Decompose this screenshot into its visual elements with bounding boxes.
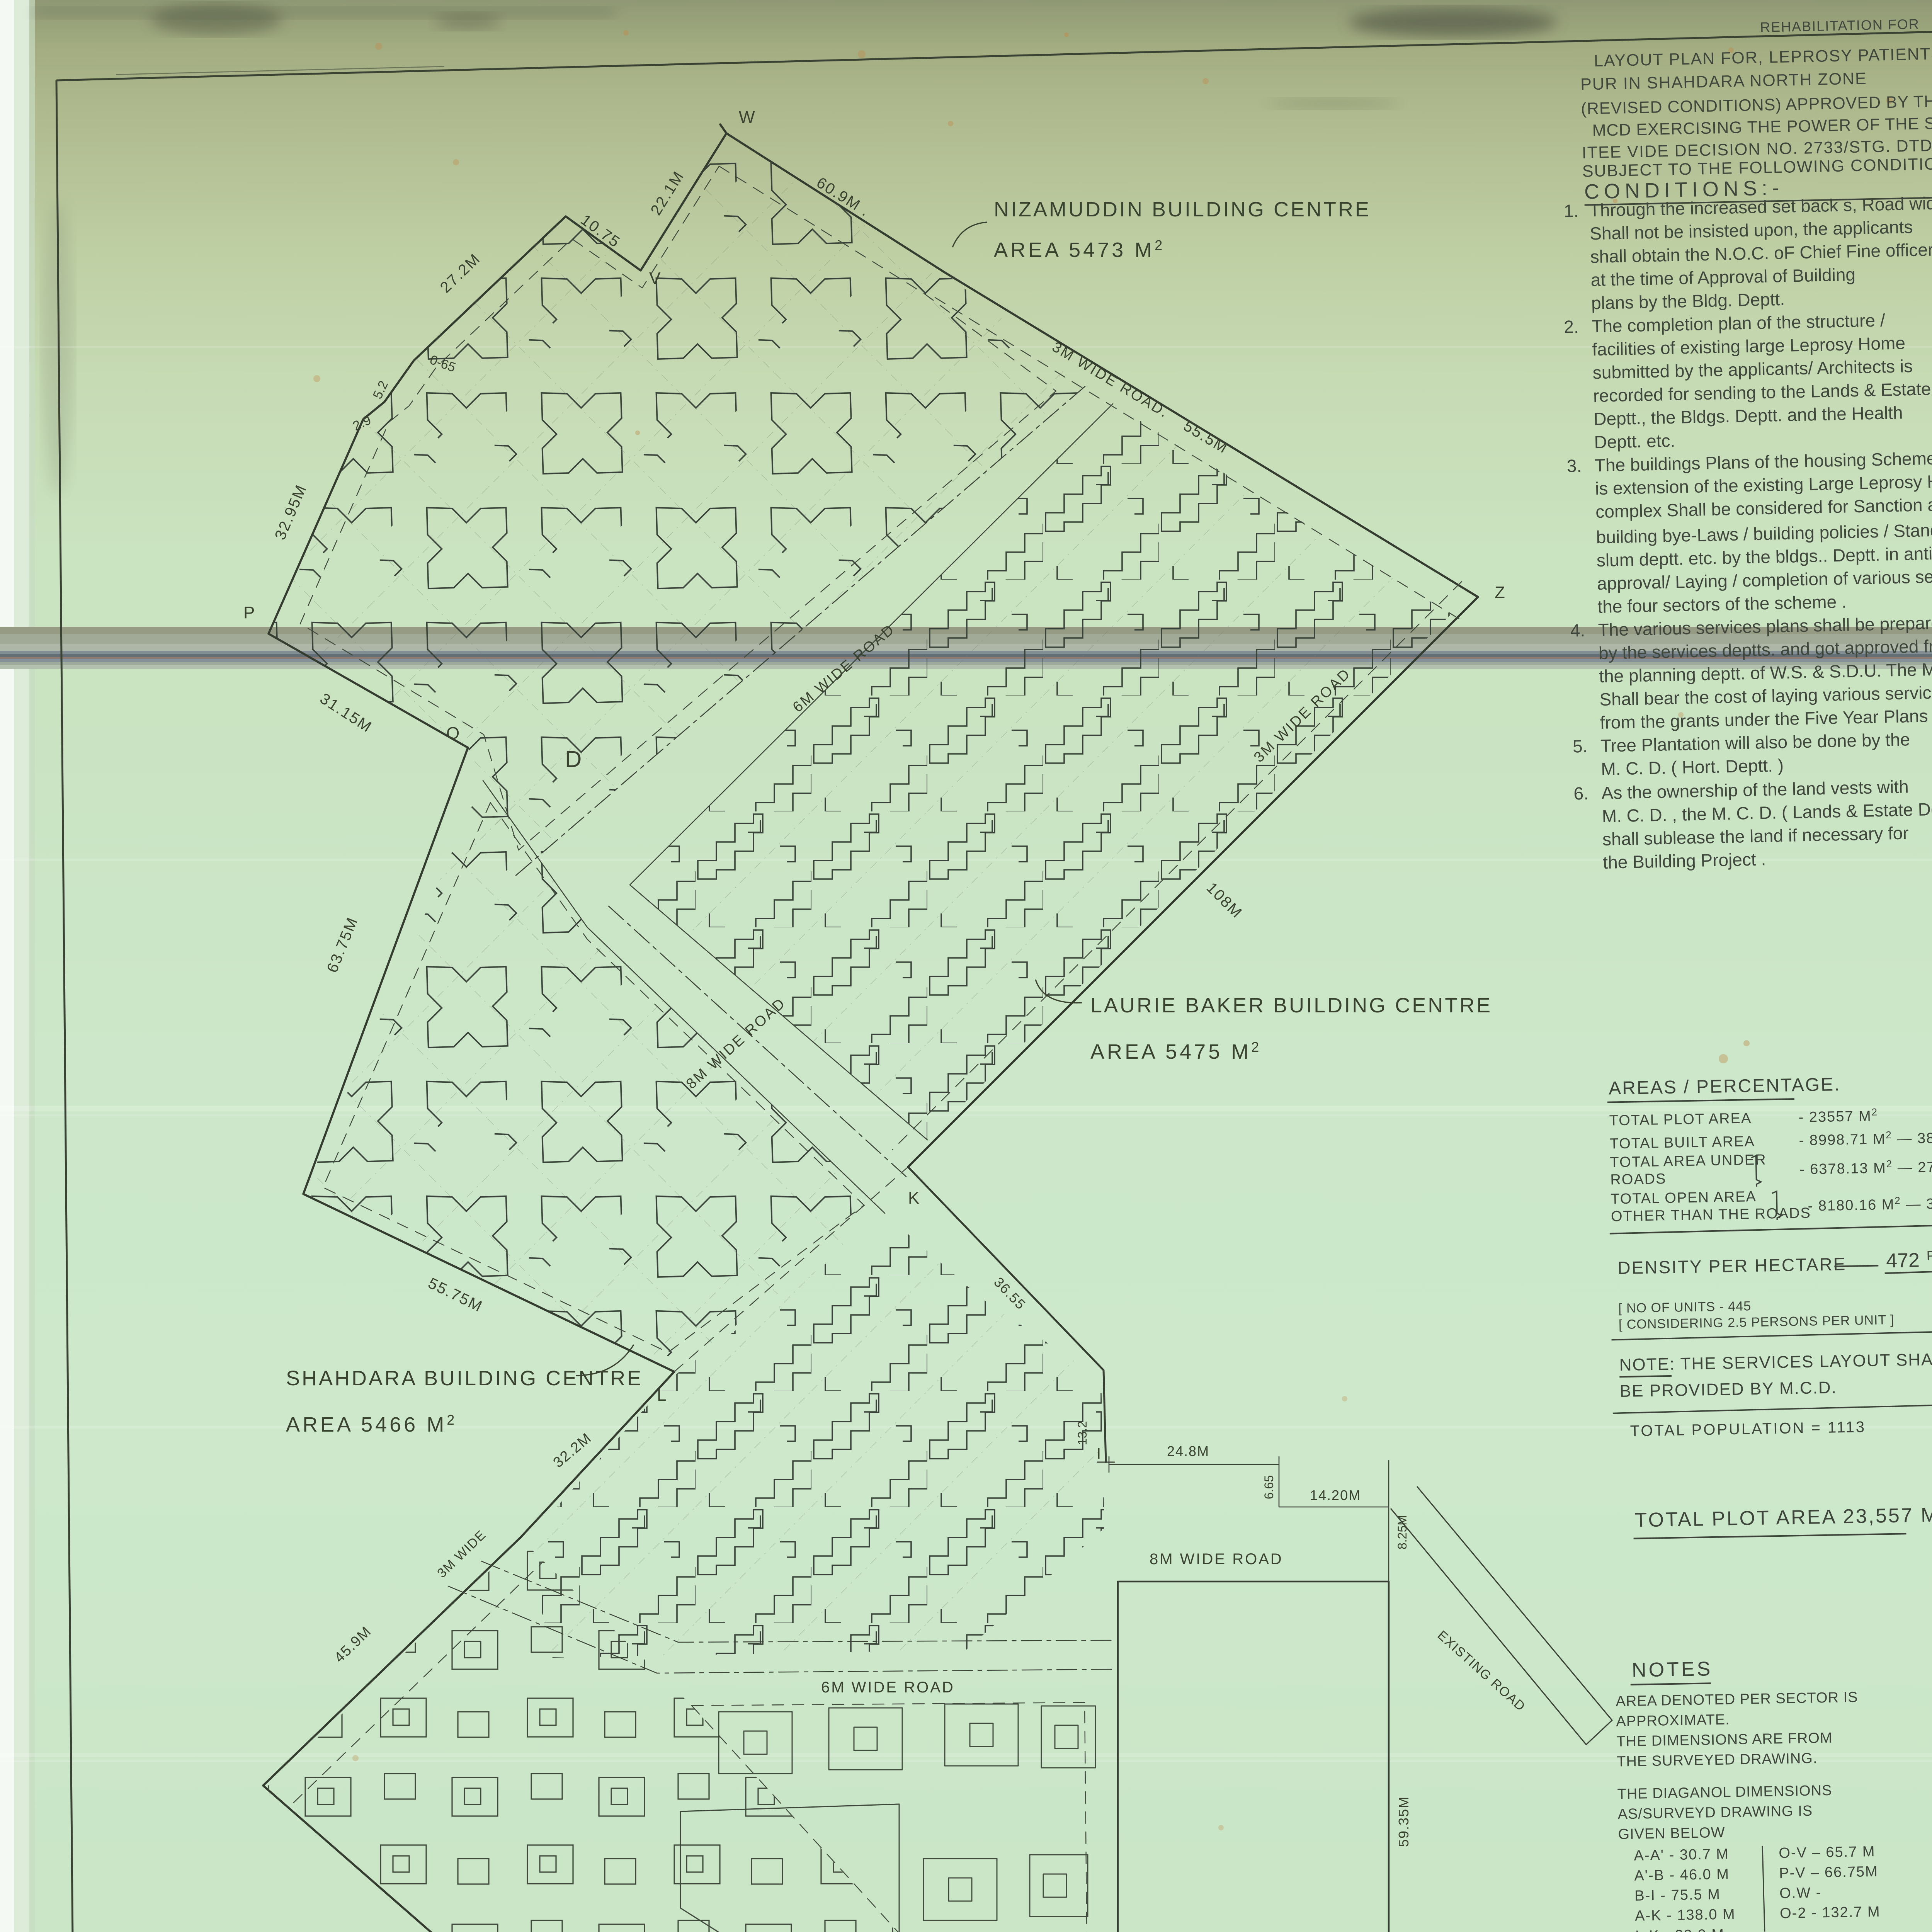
- svg-text:2.: 2.: [1564, 316, 1579, 337]
- svg-text:A-K - 138.0 M: A-K - 138.0 M: [1635, 1906, 1736, 1924]
- svg-text:[ NO OF UNITS - 445: [ NO OF UNITS - 445: [1618, 1299, 1752, 1316]
- svg-text:SHAHDARA BUILDING CENTRE: SHAHDARA BUILDING CENTRE: [286, 1367, 643, 1390]
- svg-text:LAURIE BAKER BUILDING CENTRE: LAURIE BAKER BUILDING CENTRE: [1090, 994, 1492, 1017]
- svg-text:14.20M: 14.20M: [1310, 1487, 1361, 1503]
- svg-text:TOTAL AREA UNDER: TOTAL AREA UNDER: [1610, 1151, 1767, 1170]
- svg-text:AREA 5466 M2: AREA 5466 M2: [286, 1412, 457, 1436]
- svg-text:W: W: [739, 108, 755, 127]
- svg-text:V: V: [649, 269, 661, 288]
- svg-text:NOTES: NOTES: [1632, 1658, 1713, 1682]
- svg-text:5.: 5.: [1572, 736, 1587, 757]
- svg-text:8M WIDE ROAD: 8M WIDE ROAD: [1150, 1551, 1283, 1568]
- svg-text:L: L: [657, 1386, 666, 1405]
- svg-text:AREA 5473 M2: AREA 5473 M2: [994, 237, 1165, 262]
- svg-text:Deptt. etc.: Deptt. etc.: [1594, 430, 1675, 452]
- svg-text:Z: Z: [1495, 583, 1505, 602]
- svg-text:6.65: 6.65: [1262, 1475, 1276, 1499]
- svg-text:AREAS / PERCENTAGE.: AREAS / PERCENTAGE.: [1609, 1074, 1841, 1099]
- svg-text:4.: 4.: [1570, 620, 1585, 641]
- svg-text:24.8M: 24.8M: [1167, 1443, 1209, 1459]
- svg-text:O.W -: O.W -: [1779, 1884, 1822, 1901]
- svg-text:O-2 - 132.7 M: O-2 - 132.7 M: [1780, 1904, 1881, 1922]
- svg-text:P: P: [243, 603, 255, 622]
- svg-text:8.25M: 8.25M: [1395, 1515, 1409, 1549]
- svg-text:6M WIDE ROAD: 6M WIDE ROAD: [821, 1679, 955, 1696]
- svg-text:O-V – 65.7 M: O-V – 65.7 M: [1779, 1844, 1876, 1861]
- svg-text:M. C. D. ( Hort. Deptt. ): M. C. D. ( Hort. Deptt. ): [1601, 755, 1784, 779]
- svg-text:I: I: [1097, 1445, 1101, 1462]
- svg-text:AS/SURVEYD DRAWING IS: AS/SURVEYD DRAWING IS: [1617, 1803, 1813, 1823]
- svg-text:- 23557 M2: - 23557 M2: [1798, 1106, 1878, 1126]
- svg-text:the Building Project .: the Building Project .: [1603, 849, 1766, 872]
- svg-text:B-I - 75.5 M: B-I - 75.5 M: [1634, 1886, 1721, 1904]
- svg-text:DENSITY PER HECTARE: DENSITY PER HECTARE: [1617, 1254, 1847, 1278]
- svg-text:NIZAMUDDIN BUILDING CENTRE: NIZAMUDDIN BUILDING CENTRE: [994, 198, 1371, 221]
- svg-text:472: 472: [1886, 1249, 1920, 1272]
- svg-text:1.: 1.: [1563, 201, 1578, 221]
- svg-text:PERSONS/HECTARE: PERSONS/HECTARE: [1927, 1246, 1932, 1263]
- svg-text:TOTAL OPEN AREA: TOTAL OPEN AREA: [1611, 1189, 1757, 1207]
- svg-text:plans by the Bldg. Deptt.: plans by the Bldg. Deptt.: [1591, 289, 1785, 313]
- svg-text:O: O: [446, 724, 459, 743]
- svg-text:APPROXIMATE.: APPROXIMATE.: [1616, 1711, 1730, 1730]
- svg-text:A-A' - 30.7 M: A-A' - 30.7 M: [1634, 1846, 1729, 1864]
- svg-text:TOTAL PLOT AREA: TOTAL PLOT AREA: [1609, 1110, 1752, 1129]
- svg-text:K: K: [908, 1189, 919, 1207]
- svg-text:AREA 5475 M2: AREA 5475 M2: [1090, 1039, 1262, 1063]
- svg-text:13.2: 13.2: [1075, 1421, 1089, 1445]
- svg-text:6.: 6.: [1573, 783, 1588, 804]
- svg-text:BE PROVIDED BY M.C.D.: BE PROVIDED BY M.C.D.: [1620, 1378, 1837, 1401]
- svg-text:REHABILITATION FOR: REHABILITATION FOR: [1760, 16, 1920, 35]
- svg-text:59.35M: 59.35M: [1396, 1796, 1412, 1847]
- svg-text:TOTAL BUILT AREA: TOTAL BUILT AREA: [1609, 1133, 1755, 1152]
- svg-text:GIVEN BELOW: GIVEN BELOW: [1618, 1825, 1725, 1843]
- svg-text:A'-B - 46.0 M: A'-B - 46.0 M: [1634, 1866, 1730, 1884]
- svg-text:D: D: [565, 746, 582, 772]
- svg-text:3.: 3.: [1566, 456, 1582, 476]
- svg-text:ROADS: ROADS: [1610, 1171, 1667, 1188]
- svg-text:P-V – 66.75M: P-V – 66.75M: [1779, 1864, 1878, 1881]
